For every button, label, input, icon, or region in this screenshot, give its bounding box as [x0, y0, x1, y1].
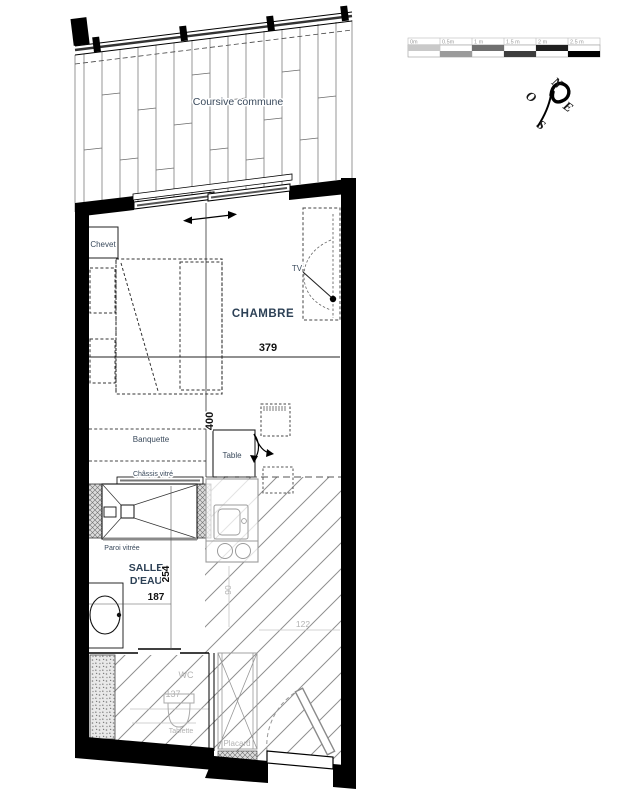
left-wall [75, 210, 89, 758]
shelf-left [90, 339, 115, 383]
scale-label: 2.5 m [570, 40, 584, 46]
dim-122: 122 [296, 619, 310, 629]
tablette-label: Tablette [169, 728, 194, 735]
corridor: Coursive commune [70, 6, 352, 212]
floor-plan-page: Coursive commune 0m 0.5m 1 m 1.5 m 2 m 2… [0, 0, 641, 800]
bed-folded-part [180, 262, 222, 390]
washbasin [90, 596, 120, 634]
tv-pointer-line [303, 272, 331, 297]
scale-segment [408, 45, 440, 51]
scale-bar: 0m 0.5m 1 m 1.5 m 2 m 2.5 m [408, 38, 600, 57]
chair-back-hatch [264, 406, 285, 411]
scale-segment [472, 45, 504, 51]
dim-379: 379 [259, 342, 277, 354]
railing-post [266, 16, 275, 32]
bed-fold-line [121, 263, 158, 391]
placard-label: Placard [223, 739, 250, 748]
right-wall [341, 178, 356, 776]
chambre-label: CHAMBRE [232, 308, 294, 320]
shower-wall-block [88, 484, 102, 538]
chair [261, 404, 290, 436]
arrowhead [266, 449, 274, 457]
technical-shaft [90, 655, 115, 739]
railing-post [70, 17, 89, 46]
scale-label: 1 m [474, 40, 484, 46]
dim-400: 400 [204, 412, 216, 430]
chambre-furniture [88, 208, 341, 493]
dim-254: 254 [161, 565, 172, 582]
corridor-railing [70, 6, 352, 64]
wardrobe [303, 208, 340, 320]
table-label: Table [222, 451, 242, 460]
floor-plan-svg: Coursive commune 0m 0.5m 1 m 1.5 m 2 m 2… [0, 0, 641, 800]
scale-segment [536, 45, 568, 51]
corridor-plank-lines [75, 20, 352, 212]
washbasin-faucet [117, 613, 121, 617]
scale-segment [504, 51, 536, 57]
bottom-wall-corner [333, 764, 356, 789]
sliding-arrow [189, 215, 231, 220]
tv-point [330, 296, 336, 302]
sliding-door [133, 174, 292, 224]
arrowhead [228, 211, 237, 219]
tv-label: TV [292, 264, 303, 273]
scale-label: 1.5 m [506, 40, 520, 46]
wardrobe-door-swing [304, 240, 331, 310]
banquette-label: Banquette [133, 435, 170, 444]
wc-label: WC [179, 670, 194, 680]
salle-deau-label-2: D'EAU [130, 575, 162, 587]
salle-deau-label-1: SALLE [129, 562, 163, 574]
dim-187: 187 [148, 592, 165, 603]
chassis-vitre-label: Châssis vitré [133, 471, 173, 478]
corridor-label: Coursive commune [193, 96, 284, 108]
scale-label: 2 m [538, 40, 548, 46]
dim-90: 90 [223, 585, 233, 595]
bottom-wall-entry [205, 756, 268, 783]
paroi-vitree-label: Paroi vitrée [104, 545, 140, 552]
compass-rose: N O E S [523, 73, 576, 133]
scale-segment [568, 51, 600, 57]
shelf-left [90, 268, 115, 313]
scale-segment [440, 51, 472, 57]
railing-post [92, 37, 101, 53]
railing-post [179, 26, 188, 42]
chevet-label: Chevet [90, 240, 116, 249]
arrowhead [183, 217, 192, 225]
railing-post [340, 6, 349, 22]
compass-west: O [523, 88, 540, 106]
compass-south: S [534, 116, 549, 132]
scale-label: 0m [410, 40, 418, 46]
scale-label: 0.5m [442, 40, 455, 46]
kitchenette [206, 479, 258, 562]
dim-137: 137 [165, 689, 180, 699]
